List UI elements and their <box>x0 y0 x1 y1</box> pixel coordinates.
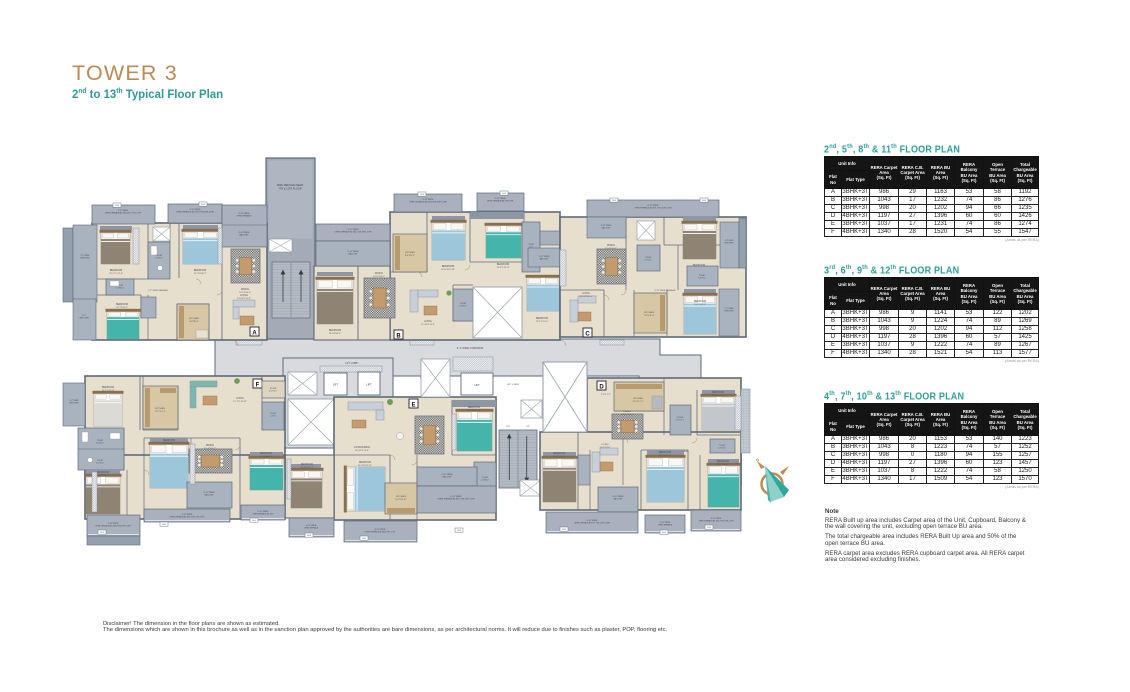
svg-text:4′-11″ WIDE: 4′-11″ WIDE <box>441 474 453 476</box>
svg-text:OPEN TERRACE AT 4TH, 7TH, 10TH: OPEN TERRACE AT 4TH, 7TH, 10TH, 13TH <box>574 522 610 525</box>
svg-text:OPEN TERRACE (AT 4TH,7TH) (9TH: OPEN TERRACE (AT 4TH,7TH) (9TH,12TH) <box>409 201 447 204</box>
svg-text:4′-1″ WIDE: 4′-1″ WIDE <box>118 210 129 212</box>
svg-text:KITCHEN: KITCHEN <box>644 312 654 314</box>
svg-text:8′-0″X11′-11″: 8′-0″X11′-11″ <box>395 499 407 501</box>
svg-text:BALCONY: BALCONY <box>442 476 452 479</box>
svg-text:12′-7″X 11′-1″: 12′-7″X 11′-1″ <box>97 475 110 477</box>
svg-text:BEDROOM: BEDROOM <box>497 263 509 266</box>
svg-text:B: B <box>396 333 401 339</box>
svg-text:11′-2″X10′-2″: 11′-2″X10′-2″ <box>194 273 207 275</box>
svg-text:8′-0″X4′-6″: 8′-0″X4′-6″ <box>96 463 104 465</box>
svg-text:BALCONY: BALCONY <box>239 234 249 237</box>
svg-text:10′-6″X 10′-0″: 10′-6″X 10′-0″ <box>621 414 633 416</box>
svg-text:KITCHEN: KITCHEN <box>189 318 199 320</box>
svg-text:OPEN TERRACE: OPEN TERRACE <box>658 524 673 527</box>
svg-text:4′-11″ WIDE: 4′-11″ WIDE <box>647 205 659 207</box>
svg-text:11′-4″X 11′-0″: 11′-4″X 11′-0″ <box>497 267 510 269</box>
svg-text:12′-0″X 8′-0″: 12′-0″X 8′-0″ <box>600 447 611 449</box>
svg-text:F: F <box>256 382 260 388</box>
svg-text:E: E <box>411 402 415 408</box>
svg-text:4′-6″X8′-0″: 4′-6″X8′-0″ <box>459 306 467 308</box>
svg-text:N: N <box>755 457 760 463</box>
svg-text:LIVING/DINING: LIVING/DINING <box>354 447 370 449</box>
svg-text:LIVING: LIVING <box>582 293 590 295</box>
svg-text:TOILET: TOILET <box>270 413 277 415</box>
svg-text:LIVING: LIVING <box>240 295 248 297</box>
svg-text:BEDROOM: BEDROOM <box>329 329 341 332</box>
svg-text:10′-1″X10′-0″: 10′-1″X10′-0″ <box>239 292 251 294</box>
svg-text:OPEN TERR.: OPEN TERR. <box>80 257 90 259</box>
svg-text:5′-5″X 7′-7″: 5′-5″X 7′-7″ <box>601 394 611 396</box>
svg-text:11′-8″X 10′-7″: 11′-8″X 10′-7″ <box>163 443 176 445</box>
svg-text:BEDROOM: BEDROOM <box>468 407 480 409</box>
svg-text:15′-10″X12′-6″: 15′-10″X12′-6″ <box>579 296 592 298</box>
svg-text:OPEN TERRACE: OPEN TERRACE <box>237 215 253 218</box>
svg-text:LIVING: LIVING <box>424 321 432 323</box>
svg-text:7′-8″X 11′-1″: 7′-8″X 11′-1″ <box>644 315 655 317</box>
svg-text:8′-0″X8′-6″: 8′-0″X8′-6″ <box>189 321 199 323</box>
svg-text:4′-6″X3′-2″: 4′-6″X3′-2″ <box>698 278 706 280</box>
svg-text:DN: DN <box>506 426 510 428</box>
svg-text:10′-6″X 13′-1″: 10′-6″X 13′-1″ <box>659 455 672 457</box>
svg-text:4′-11″ WIDE: 4′-11″ WIDE <box>612 496 624 498</box>
svg-text:OPEN TERRACE (AT 4TH,7TH) (9TH: OPEN TERRACE (AT 4TH,7TH) (9TH,11TH) <box>176 211 214 214</box>
svg-text:17′-0″X 7′-7″: 17′-0″X 7′-7″ <box>155 411 166 413</box>
svg-text:BALCONY: BALCONY <box>348 253 358 256</box>
svg-text:BEDROOM: BEDROOM <box>110 269 122 272</box>
svg-text:4′-6″X8′-0″: 4′-6″X8′-0″ <box>155 258 163 260</box>
svg-text:OPEN TERR.: OPEN TERR. <box>69 402 79 404</box>
svg-text:6′-0″X4′-0″: 6′-0″X4′-0″ <box>718 447 726 449</box>
svg-text:KITCHEN: KITCHEN <box>633 398 643 400</box>
svg-text:4′-11″ WIDE: 4′-11″ WIDE <box>238 213 250 215</box>
svg-text:4′-6″X6′: 4′-6″X6′ <box>270 415 276 417</box>
svg-text:4′-11″ WIDE: 4′-11″ WIDE <box>450 496 462 498</box>
svg-text:OPEN TERRACE AT 3RD, 6TH, 9TH,: OPEN TERRACE AT 3RD, 6TH, 9TH, 11TH <box>170 516 206 519</box>
svg-text:13′-10″X 12′-6″: 13′-10″X 12′-6″ <box>237 298 251 300</box>
svg-text:10′-5″X11′-5″: 10′-5″X11′-5″ <box>694 304 706 306</box>
svg-text:8′-0″X4′-6″: 8′-0″X4′-6″ <box>96 443 104 445</box>
svg-text:12′-7″ X 11′-5″: 12′-7″ X 11′-5″ <box>109 273 123 275</box>
svg-text:5′-11″ WIDE: 5′-11″ WIDE <box>347 251 359 253</box>
svg-text:5′-7″ WIDE: 5′-7″ WIDE <box>725 308 735 310</box>
svg-text:LIFT LOBBY: LIFT LOBBY <box>345 362 359 365</box>
svg-text:DINING: DINING <box>623 411 631 413</box>
svg-text:DINING: DINING <box>206 445 214 447</box>
svg-text:OPEN TERRACE AT 4TH, 9TH: OPEN TERRACE AT 4TH, 9TH <box>487 200 514 203</box>
svg-text:LIVING: LIVING <box>236 398 244 400</box>
svg-text:5′-11″ WIDE PASSAGE: 5′-11″ WIDE PASSAGE <box>655 289 676 292</box>
svg-text:11′-9″X 12′-9″: 11′-9″X 12′-9″ <box>553 456 566 458</box>
svg-text:15′-4″X 8′-5″: 15′-4″X 8′-5″ <box>204 448 216 450</box>
svg-text:5′-7″ WIDE: 5′-7″ WIDE <box>70 400 80 402</box>
svg-text:KITCHEN: KITCHEN <box>155 408 165 410</box>
svg-text:4′-11″ WIDE: 4′-11″ WIDE <box>494 198 506 200</box>
svg-text:12′-1″X 10′-1″: 12′-1″X 10′-1″ <box>536 321 549 323</box>
svg-text:BEDROOM: BEDROOM <box>97 472 109 474</box>
svg-text:BEDROOM: BEDROOM <box>717 461 729 463</box>
svg-text:OPEN TERRACE AT 2ND: OPEN TERRACE AT 2ND <box>253 513 274 516</box>
svg-text:D: D <box>599 384 604 390</box>
svg-text:4′-11″ WIDE: 4′-11″ WIDE <box>238 232 250 234</box>
svg-text:7TH & 11TH FLOOR: 7TH & 11TH FLOOR <box>278 187 301 190</box>
svg-text:BEDROOM: BEDROOM <box>536 318 548 320</box>
svg-text:OPEN TERRACE AT 4TH (7TH), 8TH: OPEN TERRACE AT 4TH (7TH), 8TH, 13TH <box>95 525 131 528</box>
svg-text:8′-0″X11′-1″: 8′-0″X11′-1″ <box>405 255 416 257</box>
svg-text:WIDE OPEN: WIDE OPEN <box>79 317 89 319</box>
svg-text:BEDROOM: BEDROOM <box>659 452 671 454</box>
svg-text:OPEN TERR.: OPEN TERR. <box>724 242 734 244</box>
svg-text:10′-10″X10′-7″: 10′-10″X10′-7″ <box>259 456 272 458</box>
svg-text:4′-6″X8′-2″: 4′-6″X8′-2″ <box>481 480 489 482</box>
svg-text:BEDROOM: BEDROOM <box>442 265 454 268</box>
svg-text:BEDROOM: BEDROOM <box>260 453 272 455</box>
svg-text:LIVING: LIVING <box>601 444 608 446</box>
svg-text:BEDROOM: BEDROOM <box>102 387 114 389</box>
svg-text:BEDROOM: BEDROOM <box>116 304 128 306</box>
svg-text:BEDROOM: BEDROOM <box>359 462 371 464</box>
svg-text:DINING: DINING <box>375 273 383 275</box>
svg-text:4′-6″X8′-0″: 4′-6″X8′-0″ <box>116 288 124 290</box>
svg-text:15′-10″X 12′-6″: 15′-10″X 12′-6″ <box>421 324 435 326</box>
svg-text:17′-7″X 14′-11″: 17′-7″X 14′-11″ <box>233 401 247 403</box>
svg-text:4′-11″ WIDE: 4′-11″ WIDE <box>203 492 215 494</box>
svg-text:11′-3″X 12′-6″: 11′-3″X 12′-6″ <box>712 395 725 397</box>
svg-text:OPEN TERRACE AT 3RD, 5TH, 8TH,: OPEN TERRACE AT 3RD, 5TH, 8TH, 11TH <box>438 498 475 501</box>
svg-text:5′-7″ WIDE: 5′-7″ WIDE <box>81 255 91 257</box>
svg-text:OPEN TERRACE AT 2ND, 5TH, 8TH,: OPEN TERRACE AT 2ND, 5TH, 8TH, 12TH <box>699 520 735 523</box>
svg-text:BEDROOM: BEDROOM <box>163 440 175 442</box>
svg-text:C: C <box>585 331 590 337</box>
svg-text:LIFT: LIFT <box>474 383 480 387</box>
svg-text:OPEN TERRACE AT 4TH, 7TH, 10TH: OPEN TERRACE AT 4TH, 7TH, 10TH, 13TH <box>634 207 672 210</box>
svg-text:OPEN TERRACE: OPEN TERRACE <box>304 527 319 530</box>
svg-text:9′-1″ WIDE CORRIDOR: 9′-1″ WIDE CORRIDOR <box>457 347 484 350</box>
svg-text:LIFT LOBBY: LIFT LOBBY <box>507 384 520 386</box>
svg-text:12′-0″X 7′-1″: 12′-0″X 7′-1″ <box>633 401 644 403</box>
svg-text:5′-7″X4′-9″: 5′-7″X4′-9″ <box>644 260 652 262</box>
svg-text:BEDROOM: BEDROOM <box>194 269 206 272</box>
svg-text:5′-11″ WIDE: 5′-11″ WIDE <box>422 199 434 201</box>
svg-text:DINING: DINING <box>241 289 249 291</box>
svg-text:BALCONY: BALCONY <box>613 498 623 501</box>
svg-text:OPEN TERR.: OPEN TERR. <box>724 310 734 312</box>
svg-text:DINING: DINING <box>607 245 615 247</box>
svg-text:4′-11″ WIDE: 4′-11″ WIDE <box>347 229 359 231</box>
svg-text:OPEN TERRACE AT 3RD,4TH, 7TH,: OPEN TERRACE AT 3RD,4TH, 7TH, 12TH <box>105 212 142 215</box>
svg-text:BALCONY: BALCONY <box>602 227 611 230</box>
svg-text:10′-6″X 12′-10″: 10′-6″X 12′-10″ <box>467 410 481 412</box>
svg-text:11′-10″X11′-11″: 11′-10″X11′-11″ <box>358 465 372 467</box>
svg-text:10′-1″X13′-2″: 10′-1″X13′-2″ <box>373 276 385 278</box>
svg-text:12′-7″X11′-1″: 12′-7″X11′-1″ <box>116 307 128 309</box>
svg-text:OPEN TERRACE AT 2ND, 5TH, 8TH,: OPEN TERRACE AT 2ND, 5TH, 8TH, 11TH <box>335 231 372 234</box>
svg-text:LIFT: LIFT <box>366 383 372 387</box>
svg-text:10′-10″X10′-7″: 10′-10″X10′-7″ <box>300 467 313 469</box>
svg-text:BALCONY: BALCONY <box>540 258 549 261</box>
svg-text:26′-10″X 12′-6″: 26′-10″X 12′-6″ <box>355 450 369 452</box>
svg-text:TOILET: TOILET <box>719 445 726 447</box>
svg-text:10′-6″X13′-1″: 10′-6″X13′-1″ <box>329 333 342 335</box>
svg-text:BEDROOM: BEDROOM <box>694 301 706 303</box>
svg-text:4′-1″: 4′-1″ <box>82 315 86 317</box>
svg-text:UP: UP <box>526 426 530 428</box>
svg-text:5′-1″ WIDE PASSAGE: 5′-1″ WIDE PASSAGE <box>148 289 168 292</box>
svg-text:BALCONY: BALCONY <box>204 494 214 497</box>
svg-text:5′-0″X 6′-7″: 5′-0″X 6′-7″ <box>676 420 685 422</box>
svg-text:5′-11″ WIDE: 5′-11″ WIDE <box>189 209 201 211</box>
svg-text:10′-0″X10′-1″: 10′-0″X10′-1″ <box>605 248 617 250</box>
svg-text:A: A <box>252 330 257 336</box>
svg-text:KITCHEN: KITCHEN <box>396 496 406 498</box>
svg-text:LIFT: LIFT <box>333 383 339 387</box>
svg-text:BEDROOM: BEDROOM <box>712 392 724 394</box>
svg-text:12′-1″X 11′-4″: 12′-1″X 11′-4″ <box>102 390 115 392</box>
svg-text:6′-1″X3′-0″: 6′-1″X3′-0″ <box>269 391 277 393</box>
svg-text:4′-9″ WIDE: 4′-9″ WIDE <box>725 240 735 242</box>
svg-text:OPEN TERRACE AT 3RD, 9TH, 11TH: OPEN TERRACE AT 3RD, 9TH, 11TH <box>365 531 396 534</box>
svg-text:BEDROOM: BEDROOM <box>553 453 565 455</box>
svg-text:11′-2″X 10′-6″: 11′-2″X 10′-6″ <box>717 464 730 466</box>
svg-text:BEDROOM: BEDROOM <box>301 464 313 466</box>
svg-text:10′-6″X12′-10″: 10′-6″X12′-10″ <box>441 269 455 271</box>
svg-text:KITCHEN: KITCHEN <box>405 252 415 254</box>
